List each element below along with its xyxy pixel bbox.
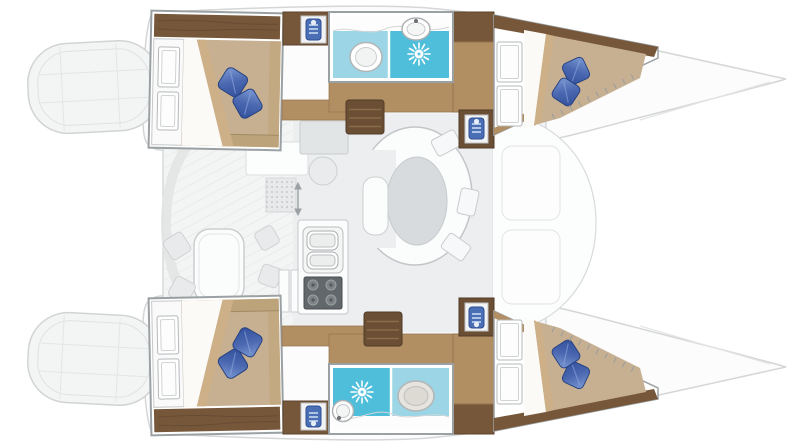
toilet [350,43,382,72]
settee-end-seat [363,177,388,235]
cockpit-table [194,229,244,303]
vanity-sink [402,18,430,40]
vanity-sink [333,401,354,422]
entry-mat [266,178,296,212]
oval-table [387,157,447,245]
stove [304,277,342,309]
top-companionway-steps [346,100,384,134]
toilet [398,381,434,411]
catamaran-floor-plan [0,0,800,446]
floor-plan-svg [0,0,800,446]
top-transom-steps [26,39,163,136]
bottom-bathroom [329,364,453,434]
foredeck-hatch [502,146,560,220]
bottom-transom-steps [26,311,163,408]
bathroom-counter [333,16,449,31]
stool [309,157,337,185]
nav-table [300,121,348,154]
foredeck-hatch [502,230,560,304]
top-bathroom [329,12,453,82]
bottom-companionway-steps [364,312,402,346]
